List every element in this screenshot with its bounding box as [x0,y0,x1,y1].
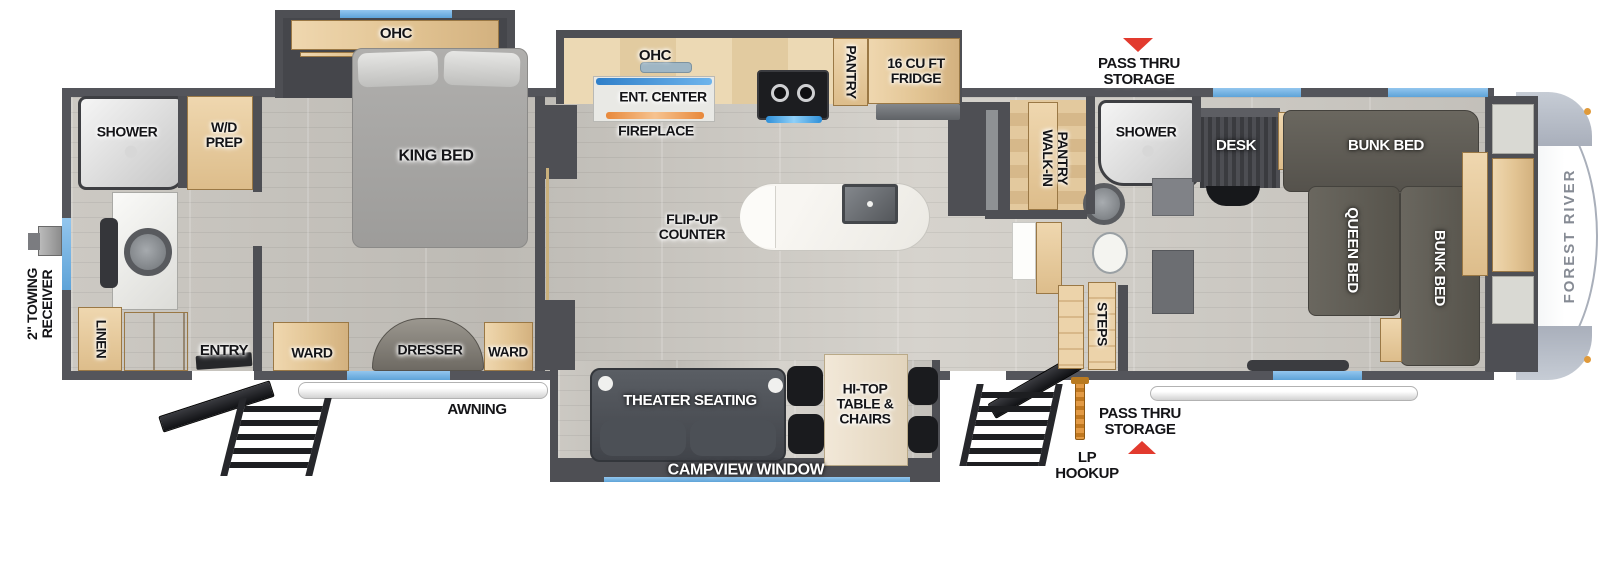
island-sink-drain [867,201,873,207]
fireplace-label: FIREPLACE [618,123,694,138]
pantry-label: PANTRY [843,45,858,99]
theater-seating-label: THEATER SEATING [623,393,756,409]
bedroom-ohc-label: OHC [380,26,412,42]
towing-receiver-label: 2" TOWING RECEIVER [25,239,55,369]
entry-steps-left [220,398,331,476]
pantry-shower-wall [1086,96,1095,214]
entry-steps-right [959,384,1062,466]
ward-right-label: WARD [488,346,528,361]
fireplace-strip [606,112,704,119]
mid-bath-cabinet-upper [1152,178,1194,216]
flip-up-counter-label: FLIP-UP COUNTER [659,212,725,242]
cap-marker-light-top [1584,108,1591,115]
desk-label: DESK [1216,138,1256,154]
stove [757,70,829,120]
fridge-label: 16 CU FT FRIDGE [887,56,944,86]
hi-top-chair-2 [788,414,824,454]
bedroom-bottom-window [347,371,450,380]
linen-label: LINEN [93,320,108,359]
ent-center-label: ENT. CENTER [619,89,706,104]
mid-shower-pan [1098,100,1198,186]
entry-opening [192,371,254,380]
wd-prep-label: W/D PREP [206,120,243,150]
theater-seat-left [600,420,686,456]
rear-shower-pan [78,96,184,190]
walkin-pantry-label: WALK-IN PANTRY [1040,129,1070,186]
lp-hookup-label: LP HOOKUP [1055,450,1118,482]
living-wall-alcove-lower [545,300,575,370]
pass-thru-panel-top [1492,104,1534,154]
mid-shower-label: SHOWER [1116,124,1177,139]
pass-thru-panel-bottom [1492,276,1534,324]
queen-bed-label: QUEEN BED [1344,207,1360,293]
rear-shower-label: SHOWER [97,124,158,139]
bunk-bed-right-label: BUNK BED [1431,230,1447,306]
bath-mirror [100,218,118,288]
hi-top-chair-1 [787,366,823,406]
bath-bedroom-wall-upper [253,96,262,192]
floorplan-canvas: 2" TOWING RECEIVER SHOWER W/D PREP LINEN… [0,0,1600,564]
hi-top-label: HI-TOP TABLE & CHAIRS [837,381,894,426]
bath-base-cabinets [124,312,188,371]
steps-right-wall [1118,285,1128,371]
theater-cupholder-right [768,378,783,393]
ward-left-label: WARD [291,345,332,360]
bunk-front-cabinet [1462,152,1488,276]
pass-thru-top-arrow [1123,38,1153,52]
bunk-floor-rail [1247,360,1349,371]
steps-landing [1036,222,1062,294]
fridge-doors [876,104,960,120]
bedroom-slide-window [340,10,452,18]
awning-rail-left [298,382,548,399]
toilet [1092,232,1128,274]
pass-thru-top-label: PASS THRU STORAGE [1098,56,1180,88]
walkin-pantry-bottom-wall [985,210,1087,219]
theater-cupholder-left [598,376,613,391]
king-pillow-right [443,51,520,88]
bunk-bottom-window [1273,371,1362,380]
bath-open-door [1012,222,1036,280]
hi-top-chair-3 [908,367,938,405]
bedroom-living-wall [535,96,545,371]
stove-burner-left [771,84,789,102]
stove-glow-strip [766,116,822,123]
campview-window-label: CAMPVIEW WINDOW [668,461,825,478]
bunk-top-window-right [1388,88,1488,97]
bath-wall-shower-wd [178,96,187,188]
hi-top-chair-4 [908,416,938,453]
theater-seat-right [690,420,776,456]
mid-bath-cabinet-lower [1152,250,1194,314]
kitchen-end-panel [986,110,998,210]
king-pillow-left [357,51,438,88]
lp-hookup-valve [1071,377,1089,384]
living-wall-alcove-upper [545,105,577,179]
stove-burner-right [797,84,815,102]
mid-bath-bunk-wall [1192,96,1201,182]
awning-label: AWNING [447,402,506,418]
bath-sink [124,228,172,276]
pass-thru-bottom-arrow [1128,441,1156,454]
lp-hookup-pipe [1075,382,1085,440]
king-bed-label: KING BED [398,147,473,164]
awning-rail-right [1150,386,1418,401]
bunk-top-window-left [1213,88,1301,97]
pass-thru-bottom-label: PASS THRU STORAGE [1099,406,1181,438]
steps-label: STEPS [1094,302,1109,346]
steps-column-a [1058,285,1084,369]
kitchen-ohc-label: OHC [639,48,671,64]
entry-opening-right [950,371,1006,380]
cap-marker-light-bottom [1584,356,1591,363]
dresser-label: DRESSER [398,342,463,357]
bedroom-pocket-door [546,168,549,300]
pass-thru-floor [1492,158,1534,272]
entry-label: ENTRY [200,343,248,359]
bunk-bed-top-label: BUNK BED [1348,138,1424,154]
brand-logo: FOREST RIVER [1562,169,1578,304]
rear-wall-window [62,218,71,290]
bath-bedroom-wall-lower [253,246,262,371]
bunk-nightstand [1380,318,1402,362]
ent-center-tv-strip [596,78,712,85]
